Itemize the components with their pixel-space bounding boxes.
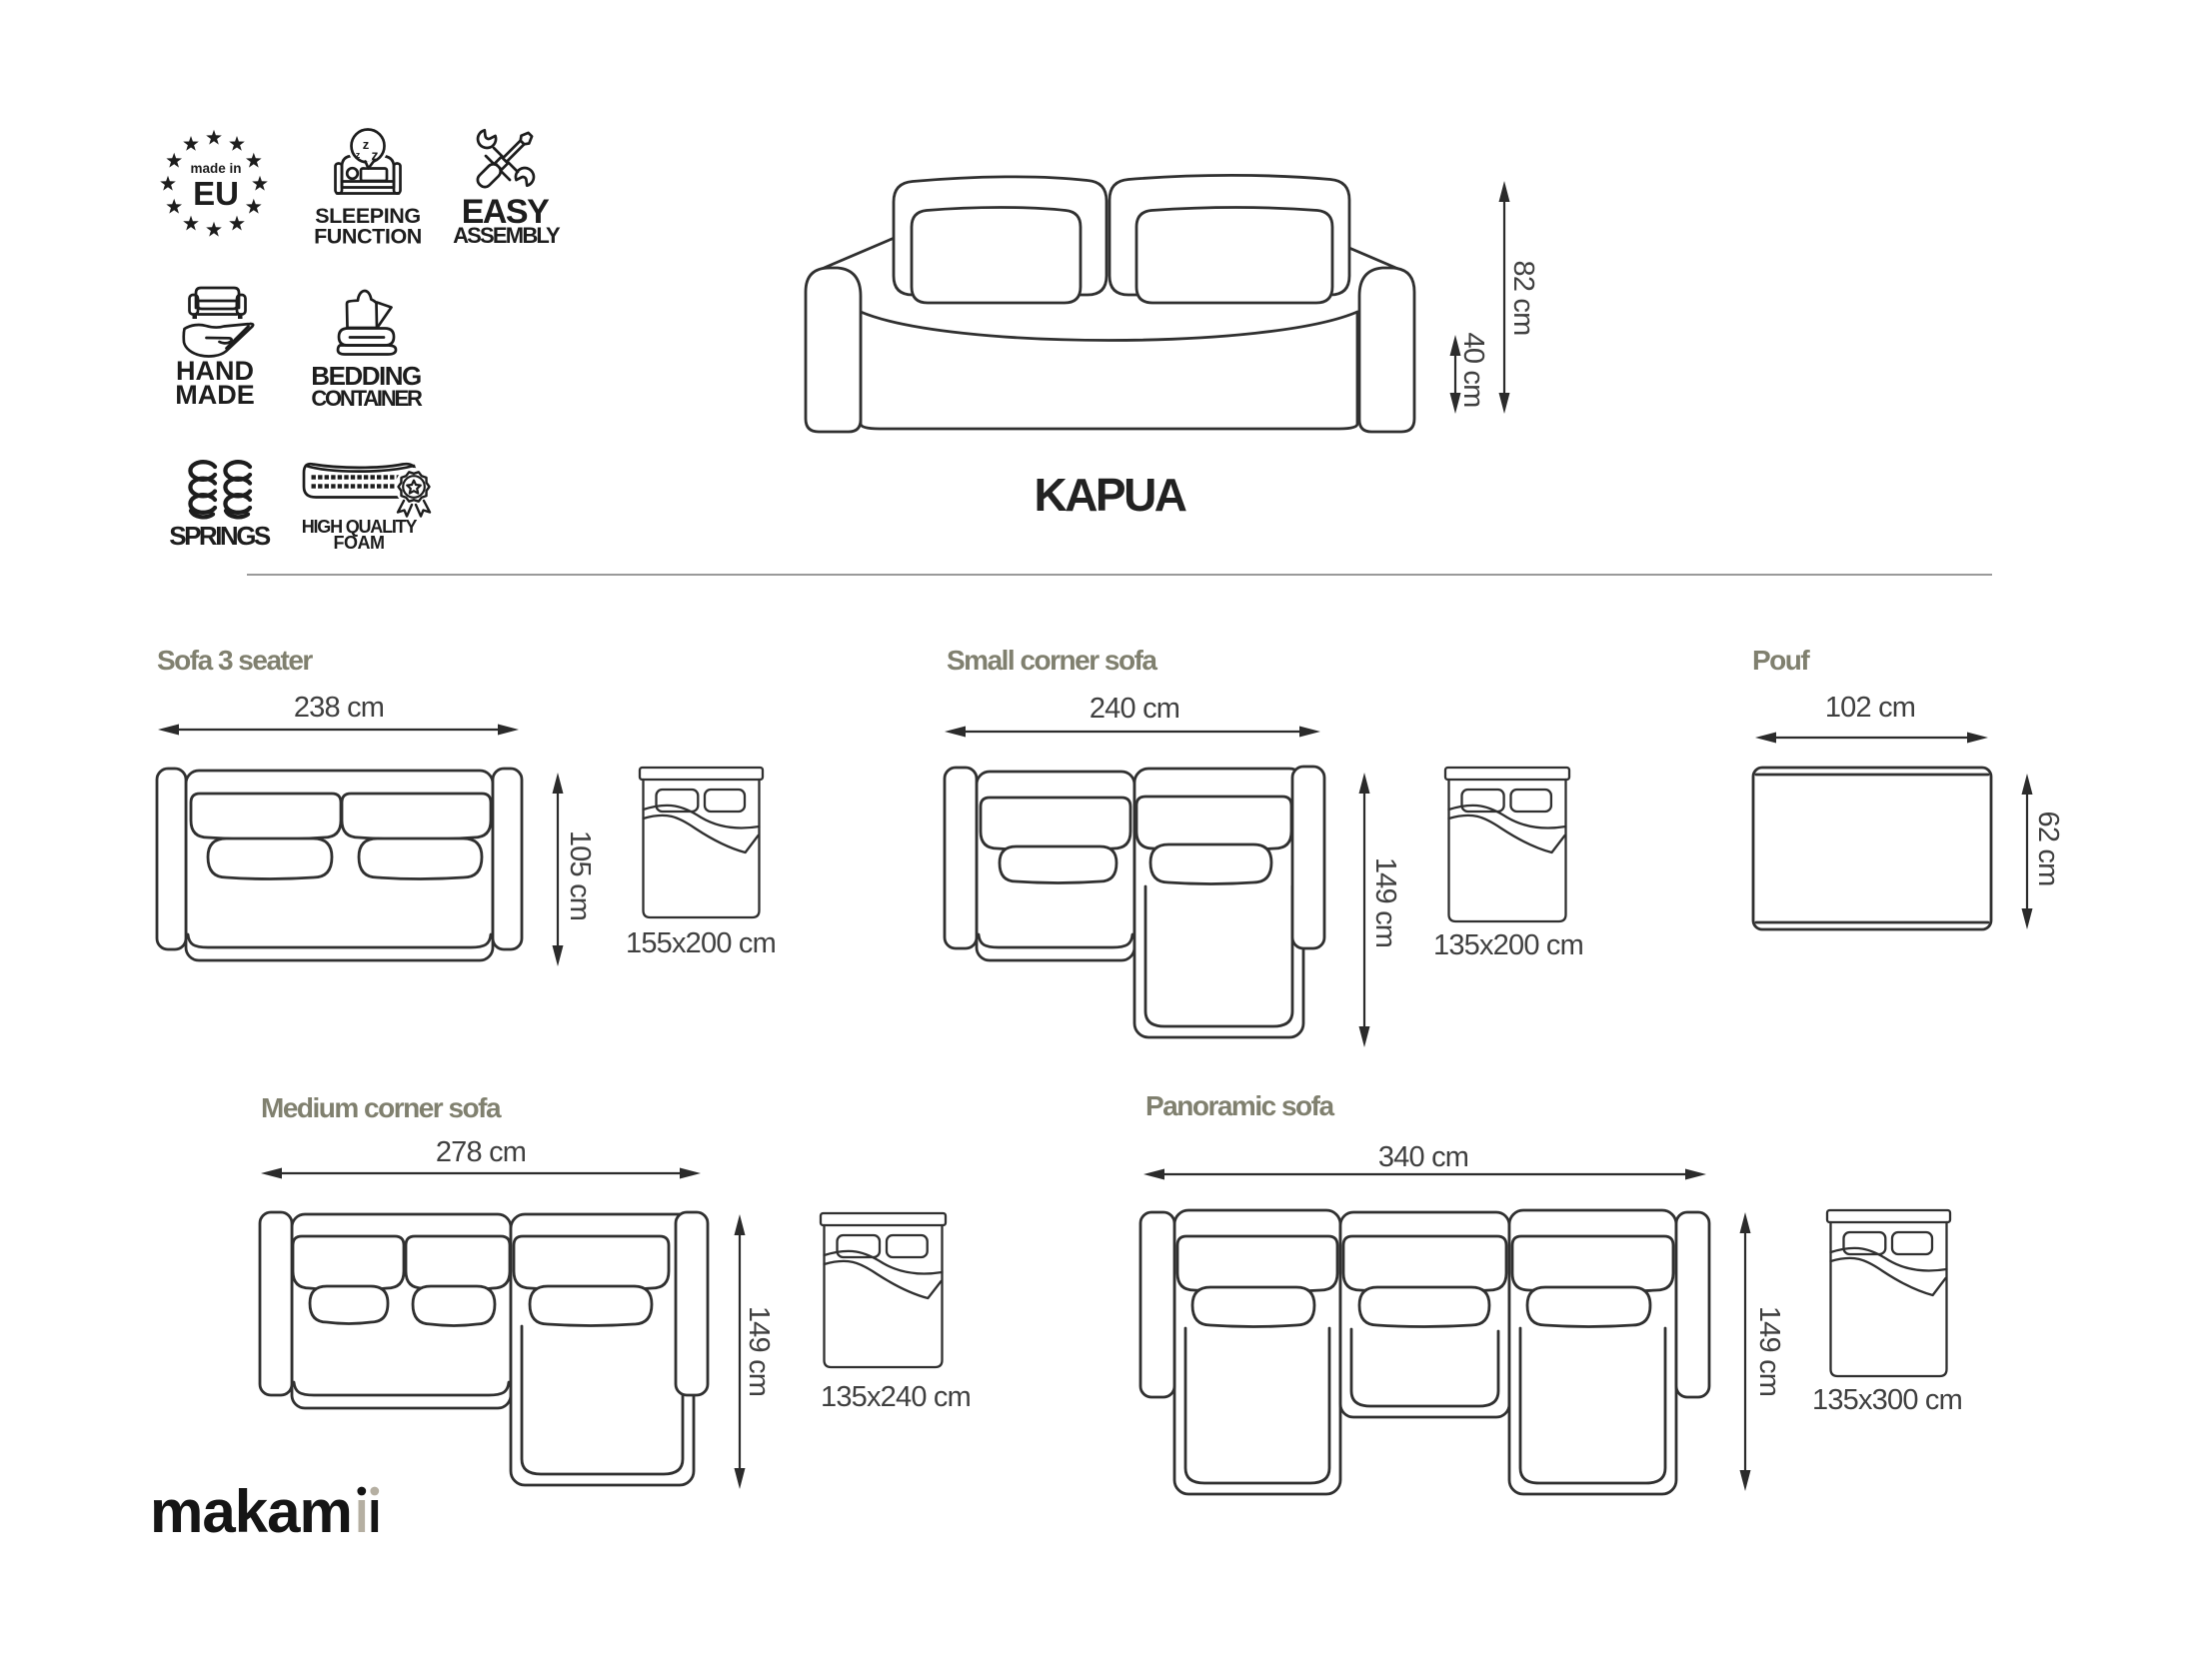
svg-text:155x200 cm: 155x200 cm — [626, 927, 776, 959]
svg-text:makam: makam — [150, 1478, 352, 1545]
svg-text:238 cm: 238 cm — [294, 692, 384, 724]
svg-text:z: z — [363, 137, 370, 152]
svg-text:Small corner sofa: Small corner sofa — [947, 645, 1157, 676]
svg-text:FUNCTION: FUNCTION — [314, 225, 422, 249]
svg-text:Panoramic sofa: Panoramic sofa — [1145, 1090, 1334, 1121]
svg-text:149 cm: 149 cm — [1369, 857, 1401, 947]
svg-text:105 cm: 105 cm — [564, 830, 596, 920]
svg-text:Pouf: Pouf — [1752, 645, 1810, 676]
svg-text:SPRINGS: SPRINGS — [169, 521, 271, 551]
svg-text:102 cm: 102 cm — [1825, 692, 1915, 724]
svg-text:z: z — [372, 147, 379, 163]
svg-text:CONTAINER: CONTAINER — [311, 386, 423, 411]
svg-text:Sofa 3 seater: Sofa 3 seater — [157, 645, 313, 676]
svg-text:FOAM: FOAM — [334, 533, 385, 553]
svg-text:149 cm: 149 cm — [1753, 1306, 1785, 1396]
svg-text:340 cm: 340 cm — [1378, 1141, 1468, 1173]
svg-text:135x240 cm: 135x240 cm — [821, 1381, 971, 1413]
svg-text:KAPUA: KAPUA — [1034, 469, 1185, 521]
svg-text:135x300 cm: 135x300 cm — [1812, 1384, 1962, 1416]
svg-text:149 cm: 149 cm — [743, 1306, 775, 1396]
svg-text:135x200 cm: 135x200 cm — [1433, 929, 1583, 961]
svg-text:z: z — [356, 150, 361, 160]
svg-text:Medium corner sofa: Medium corner sofa — [261, 1092, 502, 1123]
svg-text:ASSEMBLY: ASSEMBLY — [453, 223, 561, 248]
svg-text:made in: made in — [190, 161, 241, 176]
svg-text:278 cm: 278 cm — [436, 1136, 526, 1168]
svg-text:EU: EU — [193, 175, 239, 212]
svg-text:82 cm: 82 cm — [1507, 261, 1539, 336]
svg-text:MADE: MADE — [175, 380, 255, 410]
svg-text:240 cm: 240 cm — [1090, 693, 1179, 725]
svg-text:62 cm: 62 cm — [2032, 812, 2064, 886]
svg-text:40 cm: 40 cm — [1457, 333, 1489, 408]
